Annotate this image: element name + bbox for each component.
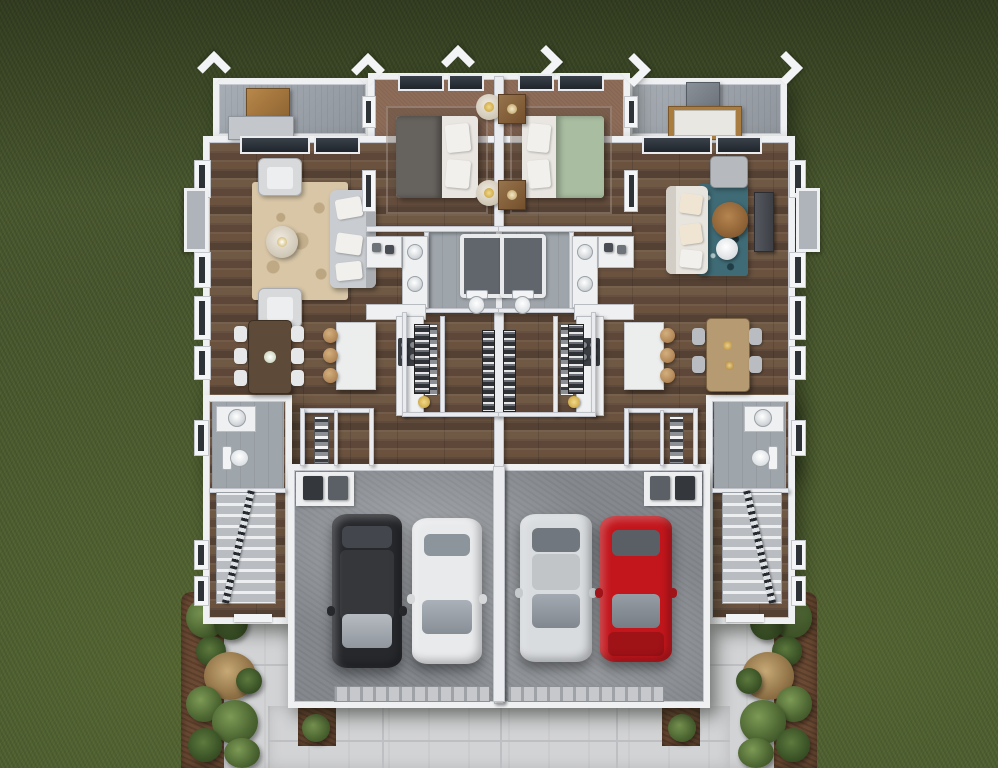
wall bbox=[553, 316, 558, 416]
vanity-sink bbox=[577, 244, 593, 260]
bay-window bbox=[796, 188, 820, 252]
dining-chair bbox=[692, 328, 705, 345]
driveway-joint bbox=[382, 706, 384, 768]
closet-rod bbox=[414, 324, 430, 394]
coffee-table-round bbox=[266, 226, 298, 258]
car-mirror bbox=[595, 588, 603, 598]
garage-door-apron bbox=[334, 686, 490, 702]
pillow bbox=[445, 159, 471, 189]
dining-chair bbox=[291, 326, 304, 342]
shrub bbox=[302, 714, 330, 742]
driveway-joint bbox=[268, 740, 730, 742]
wall bbox=[369, 408, 374, 466]
deck-table bbox=[246, 88, 290, 118]
window bbox=[362, 96, 376, 128]
utility-unit bbox=[650, 476, 670, 500]
car-rear-glass bbox=[424, 534, 470, 556]
car-roof bbox=[340, 550, 394, 620]
tv-console bbox=[754, 192, 774, 252]
dining-chair bbox=[234, 348, 247, 364]
wall bbox=[334, 410, 338, 466]
laundry-counter bbox=[366, 236, 402, 268]
car-windshield bbox=[422, 600, 472, 634]
car-rear-glass bbox=[342, 526, 392, 548]
car-mirror bbox=[479, 594, 487, 604]
dining-chair bbox=[692, 356, 705, 373]
car-mirror bbox=[407, 594, 415, 604]
car-windshield bbox=[342, 614, 392, 648]
shrub bbox=[736, 668, 762, 694]
bar-stool bbox=[660, 368, 675, 383]
window bbox=[624, 170, 638, 212]
wall bbox=[498, 226, 632, 232]
car-rear-glass bbox=[612, 530, 660, 556]
dining-chair bbox=[234, 370, 247, 386]
garage-door-apron bbox=[508, 686, 664, 702]
dining-table-light bbox=[706, 318, 750, 392]
gold-decor bbox=[723, 341, 732, 350]
window bbox=[642, 136, 712, 154]
bed-right bbox=[522, 116, 604, 198]
mudroom-shelves bbox=[314, 416, 329, 464]
duvet-charcoal bbox=[396, 116, 442, 198]
car-red-sedan bbox=[600, 516, 672, 662]
powder-sink bbox=[228, 409, 246, 427]
wall bbox=[440, 316, 445, 416]
nightstand-square bbox=[498, 180, 526, 210]
wall bbox=[591, 312, 596, 416]
driveway bbox=[268, 706, 730, 768]
garage-dividing-wall bbox=[493, 466, 505, 702]
shrub bbox=[236, 668, 262, 694]
shrub bbox=[224, 738, 260, 768]
car-windshield bbox=[532, 594, 580, 628]
utility-unit bbox=[328, 476, 348, 500]
vanity-sink bbox=[407, 276, 423, 292]
car-rear-glass bbox=[532, 528, 580, 552]
entry-threshold bbox=[726, 614, 764, 622]
car-windshield bbox=[612, 594, 660, 628]
bar-stool bbox=[323, 348, 338, 363]
window bbox=[362, 170, 376, 212]
wall bbox=[498, 412, 596, 417]
sofa-pillow bbox=[679, 249, 703, 269]
driveway-joint bbox=[500, 706, 502, 768]
closet-rod bbox=[482, 330, 495, 412]
window bbox=[558, 74, 604, 91]
wall bbox=[402, 412, 500, 417]
floorplan-render bbox=[0, 0, 998, 768]
dining-chair bbox=[291, 370, 304, 386]
car-mirror bbox=[399, 606, 407, 616]
wall bbox=[300, 408, 305, 466]
window bbox=[716, 136, 762, 154]
wall bbox=[402, 312, 407, 416]
toilet-bowl bbox=[751, 449, 770, 467]
bar-stool bbox=[323, 368, 338, 383]
pillow bbox=[527, 123, 552, 153]
window bbox=[398, 74, 444, 91]
wall bbox=[693, 408, 698, 466]
sofa-pillow bbox=[335, 261, 363, 282]
dining-chair bbox=[749, 356, 762, 373]
car-black-suv bbox=[332, 514, 402, 668]
laundry-counter bbox=[598, 236, 634, 268]
armchair bbox=[258, 158, 302, 196]
closet-rod bbox=[503, 330, 516, 412]
bar-stool bbox=[660, 348, 675, 363]
utility-unit bbox=[303, 476, 323, 500]
toilet-bowl bbox=[468, 296, 485, 314]
lamp bbox=[507, 104, 517, 114]
entry-threshold bbox=[234, 614, 272, 622]
driveway-joint bbox=[616, 706, 618, 768]
toilet-bowl bbox=[514, 296, 531, 314]
shrub bbox=[738, 738, 774, 768]
utility-unit bbox=[675, 476, 695, 500]
dining-chair bbox=[234, 326, 247, 342]
kitchen-island bbox=[624, 322, 664, 390]
window bbox=[791, 420, 806, 456]
duvet-sage bbox=[556, 116, 604, 198]
wall bbox=[660, 410, 664, 466]
sofa-white bbox=[666, 186, 708, 274]
mudroom-shelves bbox=[669, 416, 684, 464]
dining-table-dark bbox=[248, 320, 292, 394]
sofa-pillow bbox=[679, 223, 704, 246]
laundry-item bbox=[617, 245, 626, 254]
shrub bbox=[668, 714, 696, 742]
coffee-table-wood-round bbox=[712, 202, 748, 238]
window bbox=[194, 576, 209, 606]
window bbox=[789, 252, 806, 288]
armchair-seat bbox=[267, 167, 293, 189]
car-hood-shade bbox=[608, 632, 664, 656]
window bbox=[789, 346, 806, 380]
window bbox=[194, 252, 211, 288]
closet-rod bbox=[568, 324, 584, 394]
window bbox=[624, 96, 638, 128]
bar-stool bbox=[323, 328, 338, 343]
bathtub bbox=[500, 234, 546, 298]
vanity-sink bbox=[577, 276, 593, 292]
brass-lamp bbox=[484, 102, 494, 112]
side-table-white bbox=[716, 238, 738, 260]
window bbox=[791, 576, 806, 606]
closet-lamp bbox=[418, 396, 430, 408]
shrub bbox=[188, 728, 222, 762]
bar-stool bbox=[660, 328, 675, 343]
car-silver-sedan bbox=[520, 514, 592, 662]
nightstand-square bbox=[498, 94, 526, 124]
shrub bbox=[776, 728, 810, 762]
vanity-sink bbox=[407, 244, 423, 260]
dining-chair bbox=[291, 348, 304, 364]
window bbox=[194, 540, 209, 570]
armchair-seat bbox=[267, 297, 293, 321]
sofa-pillow bbox=[679, 193, 704, 216]
closet-lamp bbox=[568, 396, 580, 408]
window bbox=[194, 346, 211, 380]
gold-decor bbox=[725, 361, 734, 370]
chaise-gray bbox=[710, 156, 748, 188]
pillow bbox=[445, 123, 472, 153]
car-white-sedan bbox=[412, 518, 482, 664]
sofa-back bbox=[666, 186, 676, 274]
dining-chair bbox=[749, 328, 762, 345]
bed-left bbox=[396, 116, 478, 198]
car-mirror bbox=[327, 606, 335, 616]
sofa-pillow bbox=[334, 196, 363, 220]
car-roof bbox=[532, 554, 580, 590]
deck-cabinet bbox=[686, 82, 720, 108]
laundry-item bbox=[372, 243, 381, 252]
lamp bbox=[507, 190, 517, 200]
pillow bbox=[527, 159, 551, 189]
window bbox=[448, 74, 484, 91]
deck-bench-cushion bbox=[674, 110, 736, 136]
table-decor bbox=[277, 237, 287, 247]
window bbox=[194, 420, 209, 456]
car-mirror bbox=[515, 588, 523, 598]
bay-window bbox=[184, 188, 208, 252]
laundry-item bbox=[604, 243, 613, 252]
sofa-pillow bbox=[335, 232, 364, 255]
window bbox=[314, 136, 360, 154]
window bbox=[194, 296, 211, 340]
powder-sink bbox=[754, 409, 772, 427]
window bbox=[789, 296, 806, 340]
car-mirror bbox=[669, 588, 677, 598]
window bbox=[791, 540, 806, 570]
brass-lamp bbox=[484, 188, 494, 198]
toilet-bowl bbox=[230, 449, 249, 467]
wall bbox=[624, 408, 629, 466]
wall bbox=[366, 226, 500, 232]
flower-centerpiece bbox=[264, 351, 276, 363]
window bbox=[518, 74, 554, 91]
window bbox=[240, 136, 310, 154]
laundry-item bbox=[385, 245, 394, 254]
kitchen-island bbox=[336, 322, 376, 390]
